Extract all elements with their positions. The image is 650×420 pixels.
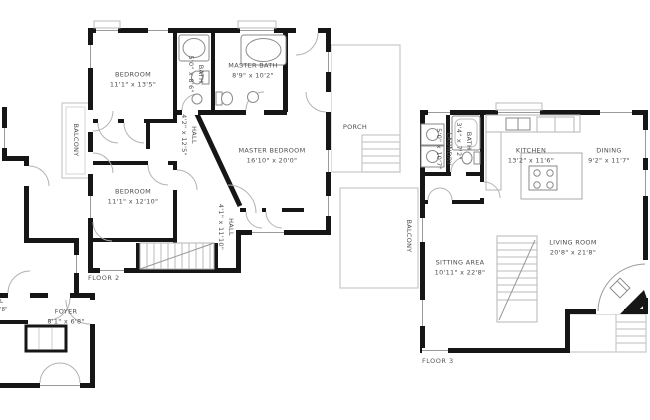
room-name: HALL xyxy=(188,126,198,144)
floor2-diagonal-wall xyxy=(196,112,240,206)
room-dims: 5'0" x 10'7" xyxy=(433,128,443,170)
floorplan-canvas: FOYER 8'1" x 6'8" L '8" BEDROOM 11'1" x … xyxy=(0,0,650,420)
room-name: BALCONY xyxy=(403,219,413,252)
room-label-hall-lower: HALL 4'1" x 11'10" xyxy=(215,204,235,250)
room-name: HALL xyxy=(225,218,235,236)
room-label-bath2: BATH 5'0" x 8'6" xyxy=(185,55,205,92)
floor2-title: FLOOR 2 xyxy=(88,274,120,282)
room-name: BEDROOM xyxy=(115,187,151,197)
room-name: SITTING AREA xyxy=(436,258,485,268)
room-dims: 13'2" x 11'6" xyxy=(508,156,554,166)
room-dims: 20'8" x 21'8" xyxy=(550,248,596,258)
room-name: PORCH xyxy=(343,123,367,133)
room-label-porch: PORCH xyxy=(343,123,367,133)
kitchen-sink-icon xyxy=(506,118,530,130)
room-name: DINING xyxy=(596,146,621,156)
room-dims: 8'9" x 10'2" xyxy=(232,71,274,81)
room-name: MASTER BEDROOM xyxy=(239,146,306,156)
room-label-laundry: LAUNDRY 5'0" x 10'7" xyxy=(433,128,453,170)
room-label-master-bedroom: MASTER BEDROOM 16'10" x 20'0" xyxy=(239,146,306,166)
room-label-foyer: FOYER 8'1" x 6'8" xyxy=(47,307,84,327)
room-label-bedroom2: BEDROOM 11'1" x 12'10" xyxy=(108,187,159,207)
room-label-living-room: LIVING ROOM 20'8" x 21'8" xyxy=(549,238,597,258)
room-dims: 4'1" x 11'10" xyxy=(215,204,225,250)
room-label-balcony2: BALCONY xyxy=(70,123,80,156)
room-name: BEDROOM xyxy=(115,70,151,80)
room-label-bath3: BATH 3'4" x 7'2" xyxy=(453,122,473,159)
room-dims: 16'10" x 20'0" xyxy=(247,156,298,166)
room-dims: 11'1" x 12'10" xyxy=(108,197,159,207)
room-dims: 10'11" x 22'8" xyxy=(435,268,486,278)
floorplan-graphics xyxy=(0,0,650,420)
room-name: KITCHEN xyxy=(516,146,546,156)
floor3-title: FLOOR 3 xyxy=(422,357,454,365)
room-dims: 3'4" x 7'2" xyxy=(453,122,463,159)
floor3-stairs-icon xyxy=(497,236,537,322)
floor2-porch-outline xyxy=(331,45,400,172)
sink-icon xyxy=(192,94,202,104)
room-dims: 8'1" x 6'8" xyxy=(47,317,84,327)
room-dims: 5'0" x 8'6" xyxy=(185,55,195,92)
room-dims: 11'1" x 13'5" xyxy=(110,80,156,90)
room-name: BATH xyxy=(463,132,473,150)
room-name: MASTER BATH xyxy=(228,61,277,71)
foyer-bench-icon xyxy=(26,326,66,351)
master-sink-icon xyxy=(248,92,259,103)
room-label-sitting-area: SITTING AREA 10'11" x 22'8" xyxy=(435,258,486,278)
room-name: BATH xyxy=(195,65,205,83)
room-dims: 9'2" x 11'7" xyxy=(588,156,630,166)
room-name: LIVING ROOM xyxy=(549,238,597,248)
room-dims: 4'2" x 12'5" xyxy=(178,114,188,156)
room-dims: '8" xyxy=(0,307,8,315)
room-name: FOYER xyxy=(55,307,78,317)
room-label-master-bath: MASTER BATH 8'9" x 10'2" xyxy=(228,61,277,81)
room-label-kitchen: KITCHEN 13'2" x 11'6" xyxy=(508,146,554,166)
armchair-icon xyxy=(610,278,630,298)
floor3-deck-outline xyxy=(567,314,646,352)
room-name: BALCONY xyxy=(70,123,80,156)
room-name: LAUNDRY xyxy=(443,132,453,165)
room-label-balcony3: BALCONY xyxy=(403,219,413,252)
room-label-partial-cutoff: L '8" xyxy=(0,299,8,314)
master-toilet-icon xyxy=(216,92,233,105)
room-label-bedroom1: BEDROOM 11'1" x 13'5" xyxy=(110,70,156,90)
stove-icon xyxy=(529,166,557,190)
floor2-stairs-icon xyxy=(140,243,214,269)
room-label-dining: DINING 9'2" x 11'7" xyxy=(588,146,630,166)
room-name: L xyxy=(0,299,8,307)
room-label-hall-upper: HALL 4'2" x 12'5" xyxy=(178,114,198,156)
